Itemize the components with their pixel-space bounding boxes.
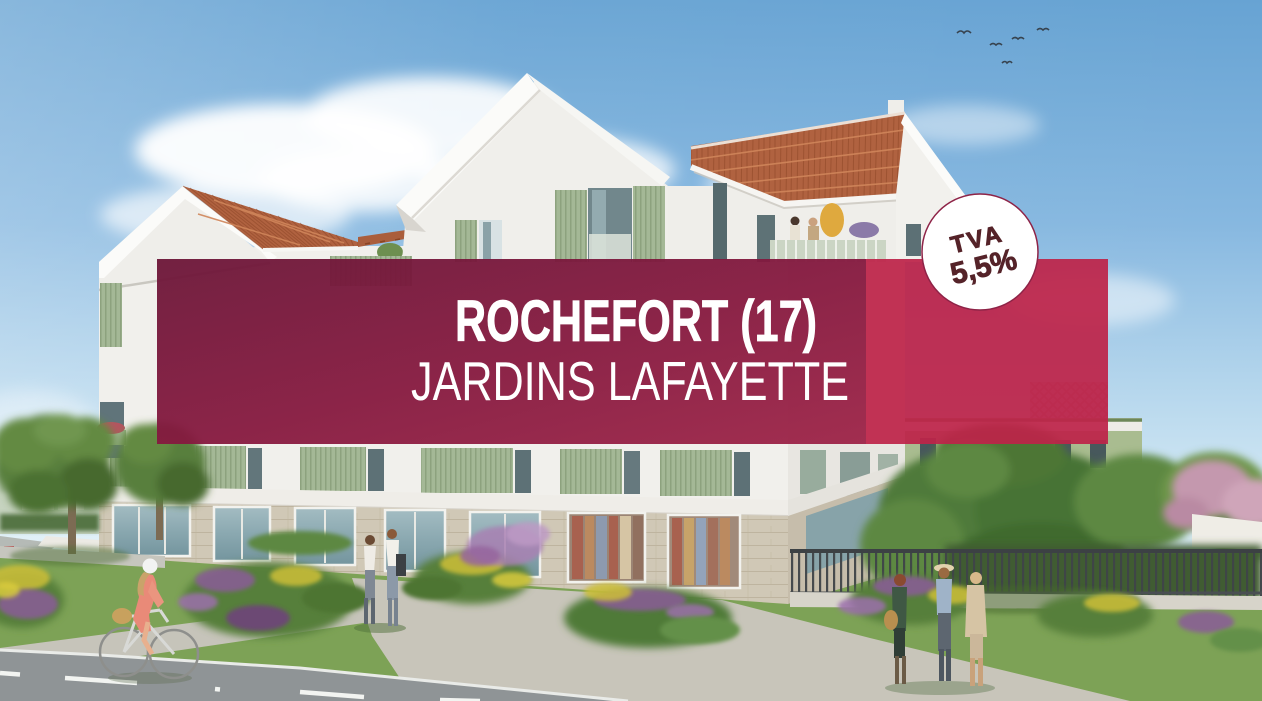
svg-text:JARDINS LAFAYETTE: JARDINS LAFAYETTE bbox=[411, 350, 849, 412]
svg-text:ROCHEFORT (17): ROCHEFORT (17) bbox=[455, 289, 817, 354]
